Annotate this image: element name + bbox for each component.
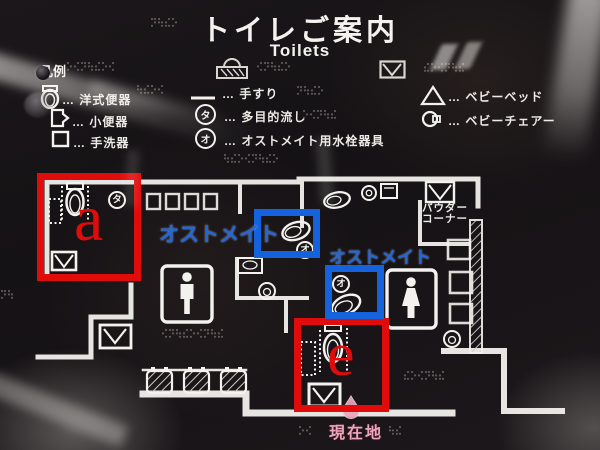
ostomate-label-1: オストメイト <box>159 218 279 247</box>
annotation-letter-e: e <box>327 324 355 386</box>
womens-room-pictogram <box>387 270 436 328</box>
annotation-letter-a: a <box>74 186 103 252</box>
annotation-box-ostomate-2 <box>325 265 384 319</box>
corridor-baby-bed-icon <box>100 325 131 348</box>
toilet-stalls-right <box>448 240 472 323</box>
toilet-stalls-top <box>147 194 217 209</box>
toilet-guide-sign-photo: トイレご案内 Toilets 凡例 … 洋式便器 … 小便器 … 手洗器 … 手… <box>0 0 600 450</box>
powder-corner-label: パウダー コーナー <box>422 203 468 225</box>
urinal-icons <box>147 367 246 393</box>
current-location-label: 現在地 <box>316 419 396 443</box>
mens-room-pictogram <box>162 266 212 322</box>
ostomate-label-2: オストメイト <box>329 243 431 268</box>
